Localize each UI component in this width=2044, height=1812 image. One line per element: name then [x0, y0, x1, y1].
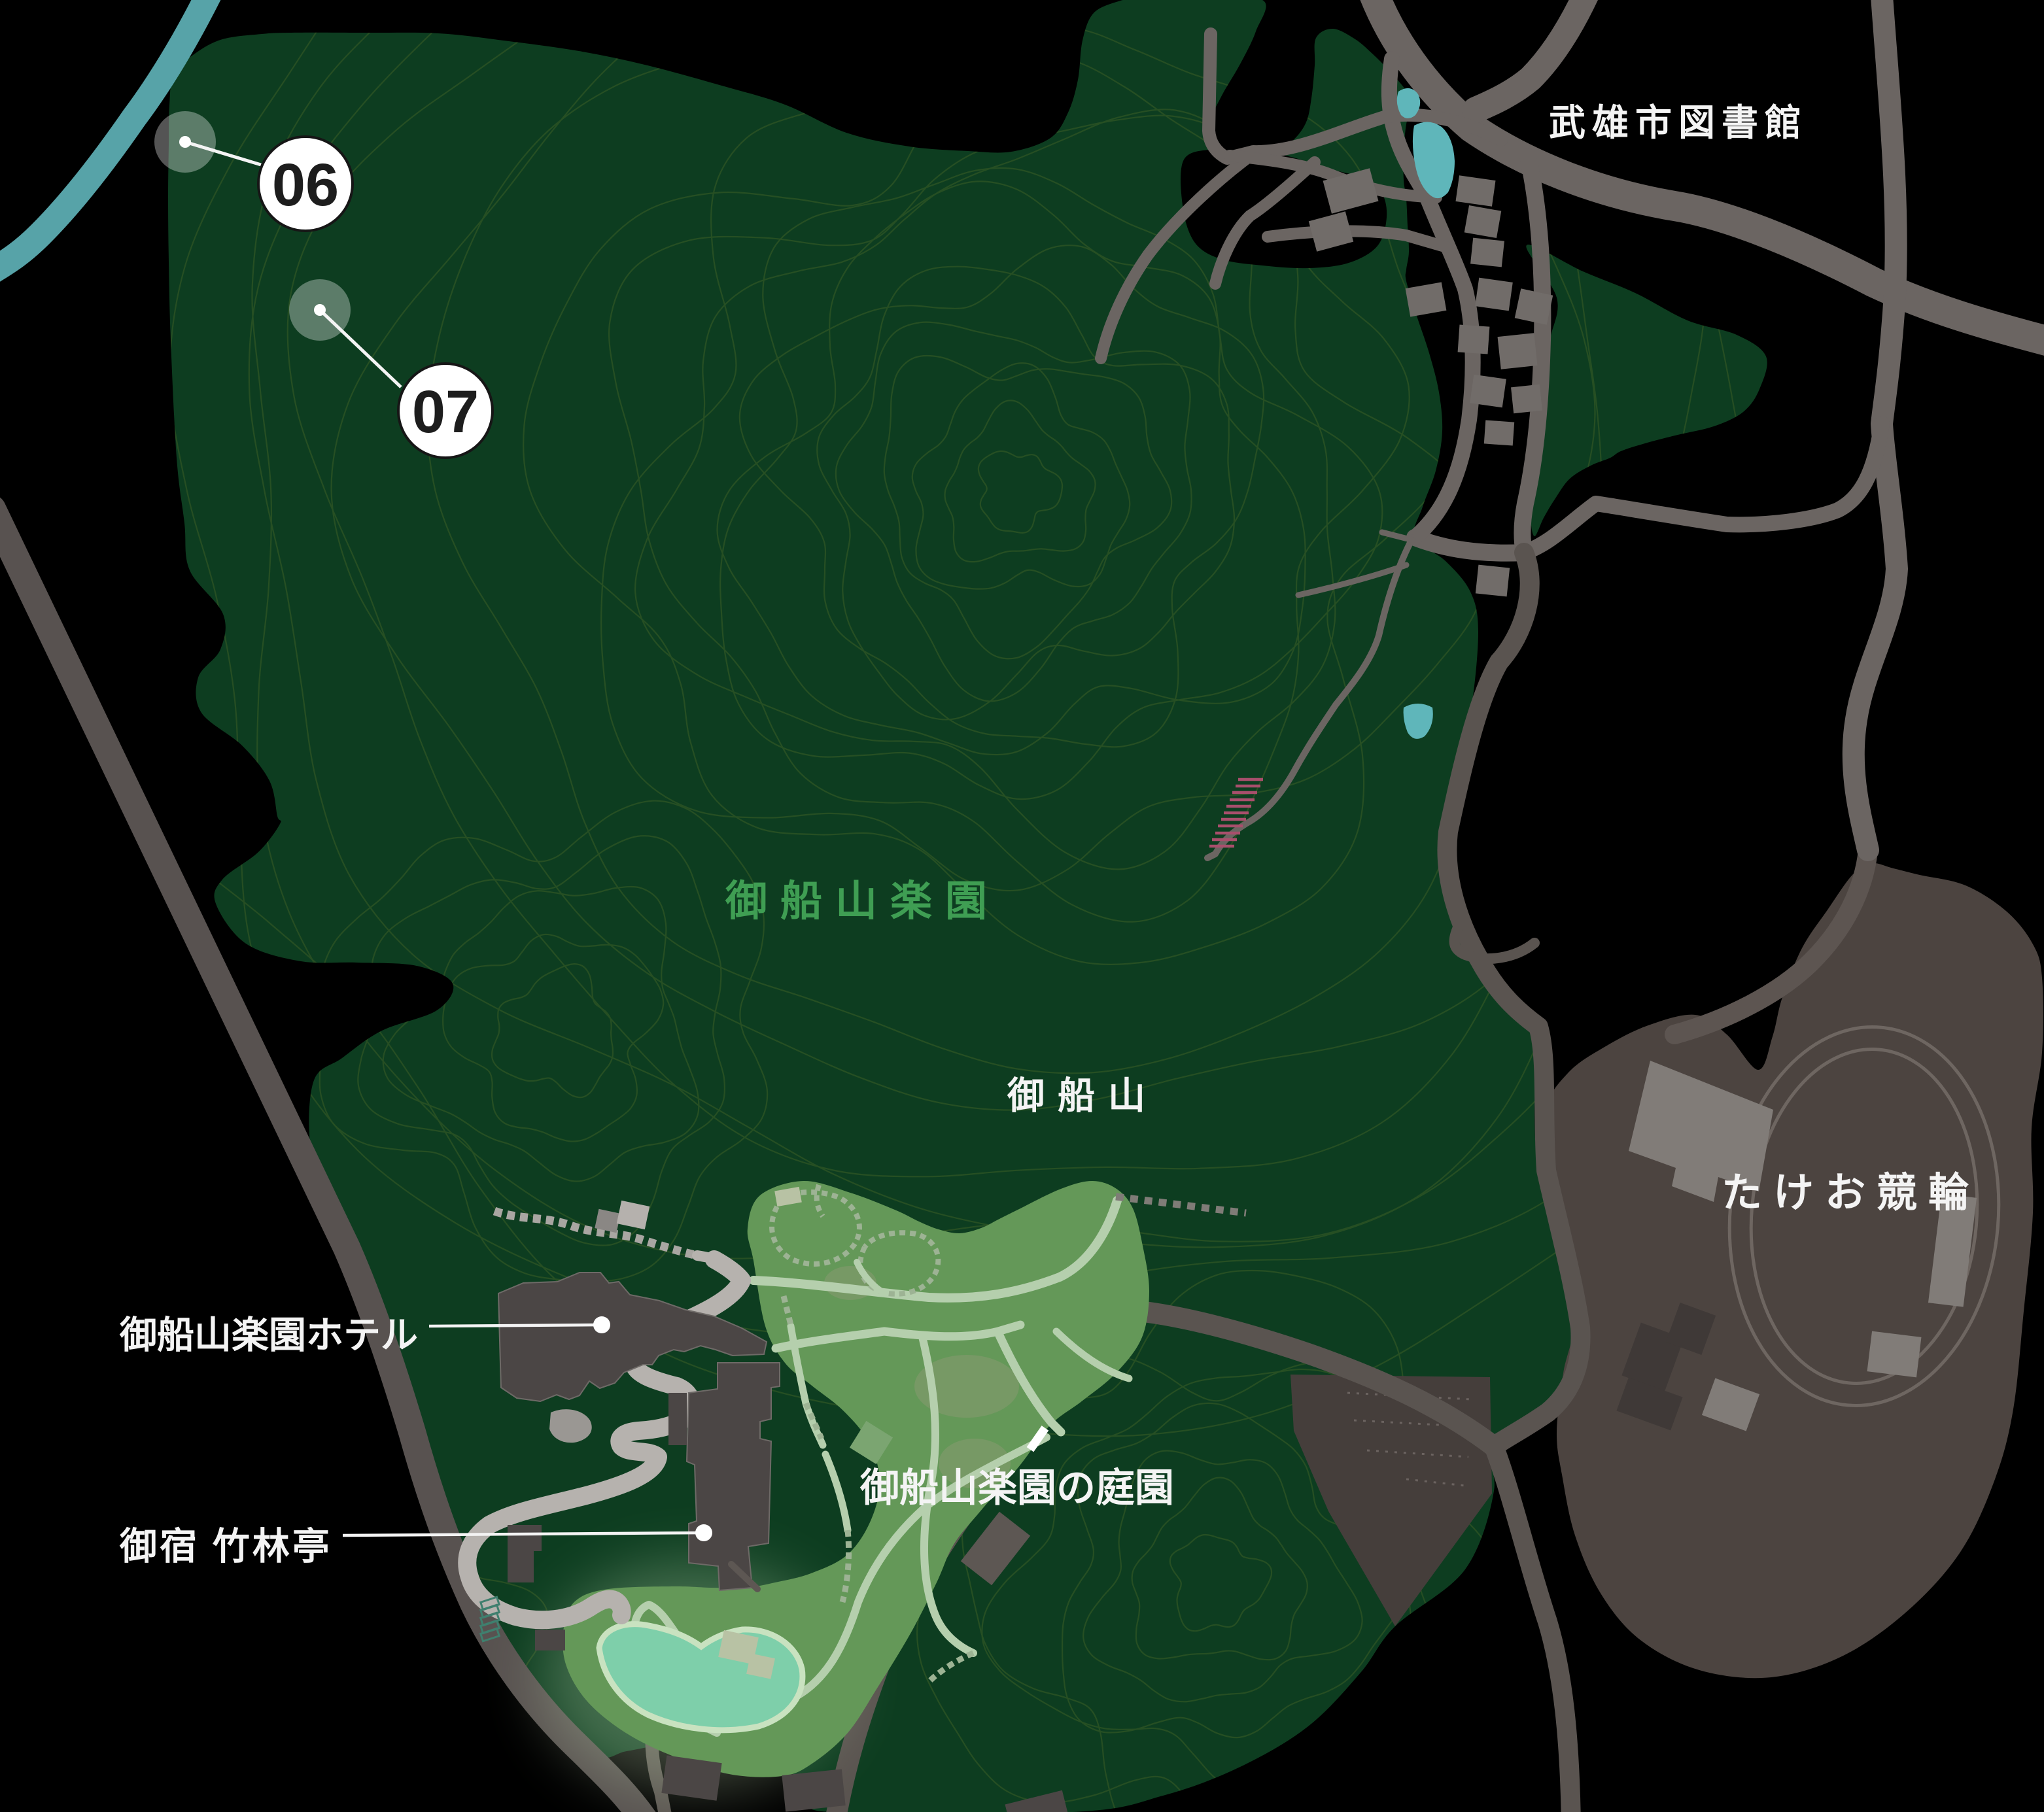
svg-text:07: 07: [412, 379, 479, 445]
svg-text:武雄市図書館: 武雄市図書館: [1549, 102, 1808, 143]
svg-text:御船山楽園: 御船山楽園: [725, 878, 1000, 925]
svg-text:御船山: 御船山: [1007, 1075, 1158, 1117]
svg-text:たけお競輪: たけお競輪: [1722, 1171, 1980, 1216]
svg-text:御船山楽園の庭園: 御船山楽園の庭園: [859, 1466, 1174, 1510]
svg-text:御宿 竹林亭: 御宿 竹林亭: [119, 1526, 332, 1567]
svg-text:御船山楽園ホテル: 御船山楽園ホテル: [119, 1314, 418, 1356]
svg-text:06: 06: [272, 152, 339, 218]
